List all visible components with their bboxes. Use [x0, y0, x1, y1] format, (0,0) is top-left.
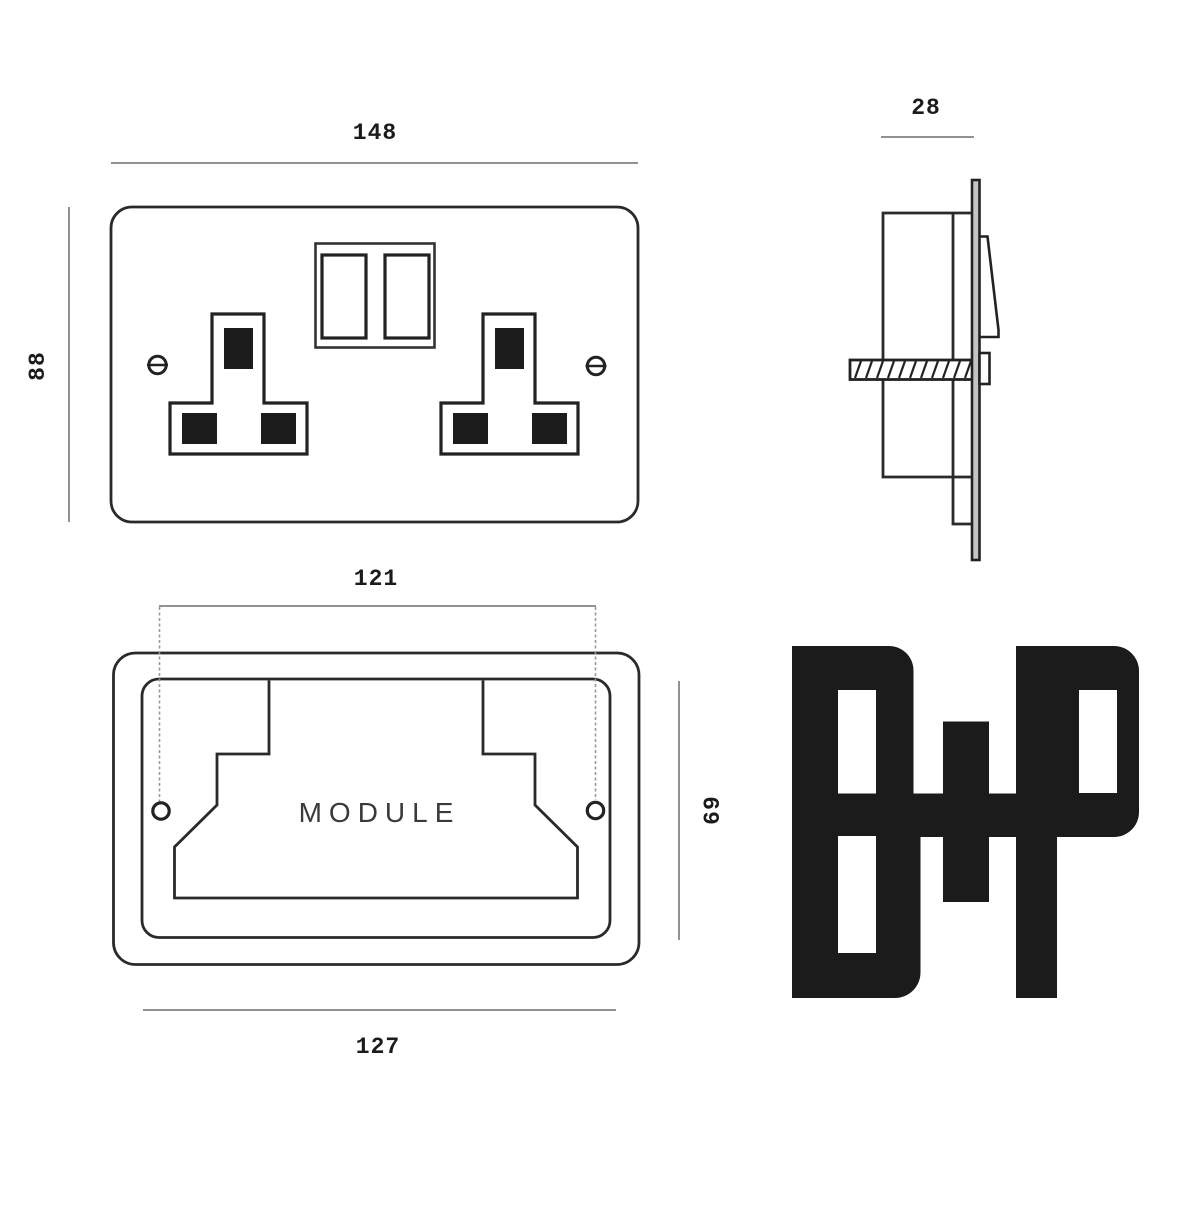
svg-text:148: 148 — [353, 120, 397, 146]
svg-text:88: 88 — [25, 351, 51, 381]
svg-text:28: 28 — [911, 95, 941, 121]
svg-text:121: 121 — [354, 566, 398, 592]
svg-text:MODULE: MODULE — [299, 797, 461, 828]
svg-text:127: 127 — [356, 1034, 400, 1060]
svg-text:69: 69 — [700, 795, 726, 825]
